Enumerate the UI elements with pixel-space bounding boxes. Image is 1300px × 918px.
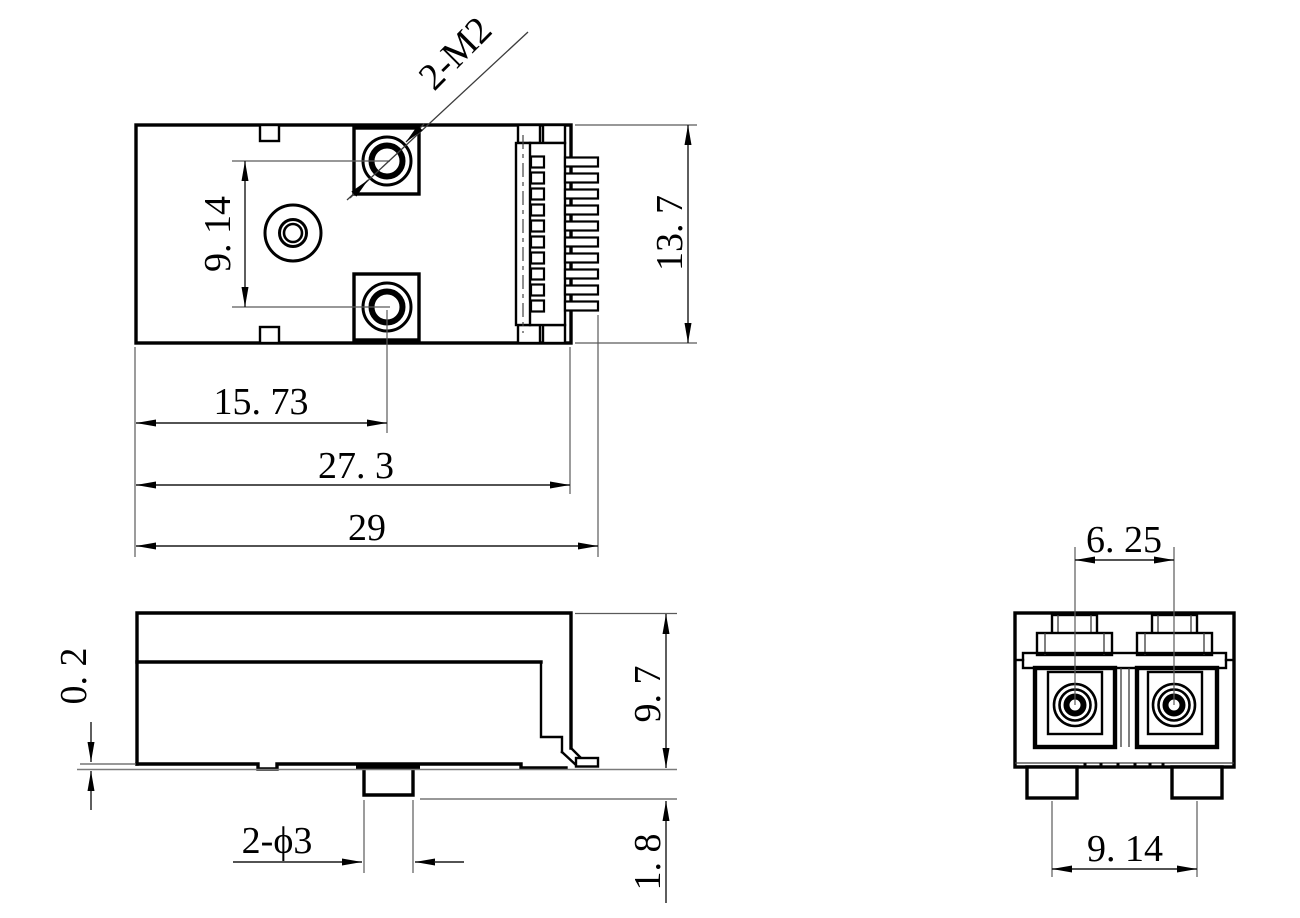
dim-body-length: 27. 3 <box>136 445 570 487</box>
dim-label: 1. 8 <box>627 834 669 891</box>
front-view: 6. 25 9. 14 <box>1015 519 1234 877</box>
dim-peg-diameter: 2-ϕ3 <box>233 820 464 862</box>
dim-peg-pitch: 9. 14 <box>1052 828 1197 870</box>
dim-port-pitch: 6. 25 <box>1075 519 1174 561</box>
dim-label: 0. 2 <box>53 648 95 705</box>
dim-label: 9. 14 <box>197 196 239 272</box>
gullwing-lead <box>562 748 598 767</box>
dim-width: 13. 7 <box>649 125 691 343</box>
mounting-peg <box>356 767 420 795</box>
engineering-drawing: 9. 14 13. 7 15. 73 27. 3 29 2-M2 <box>0 0 1300 918</box>
edge-notch <box>543 125 565 143</box>
dim-label: 9. 14 <box>1087 828 1163 870</box>
connector-housing <box>516 135 565 333</box>
dim-label: 9. 7 <box>627 666 669 723</box>
dim-label: 6. 25 <box>1086 519 1162 561</box>
dim-label: 13. 7 <box>649 195 691 271</box>
dim-label: 15. 73 <box>214 381 309 423</box>
dim-hole-offset: 15. 73 <box>136 381 387 423</box>
edge-notch <box>260 327 279 343</box>
top-view: 9. 14 13. 7 15. 73 27. 3 29 2-M2 <box>135 9 697 557</box>
side-view: 0. 2 9. 7 1. 8 2-ϕ3 <box>53 613 677 903</box>
dim-label: 2-ϕ3 <box>242 820 313 862</box>
dim-label: 27. 3 <box>318 445 394 487</box>
edge-notch <box>543 325 565 343</box>
side-body-outline <box>137 613 571 764</box>
dim-label: 29 <box>348 507 386 549</box>
edge-notch <box>518 125 540 143</box>
dim-overall-length: 29 <box>136 507 598 549</box>
dim-label: 2-M2 <box>411 9 500 98</box>
edge-notch <box>518 325 540 343</box>
dim-standoff: 0. 2 <box>53 648 95 811</box>
foot-right <box>1172 767 1222 798</box>
dim-height: 9. 7 <box>627 614 669 768</box>
edge-notch <box>260 125 279 141</box>
dim-peg-depth: 1. 8 <box>627 801 669 903</box>
foot-left <box>1027 767 1077 798</box>
